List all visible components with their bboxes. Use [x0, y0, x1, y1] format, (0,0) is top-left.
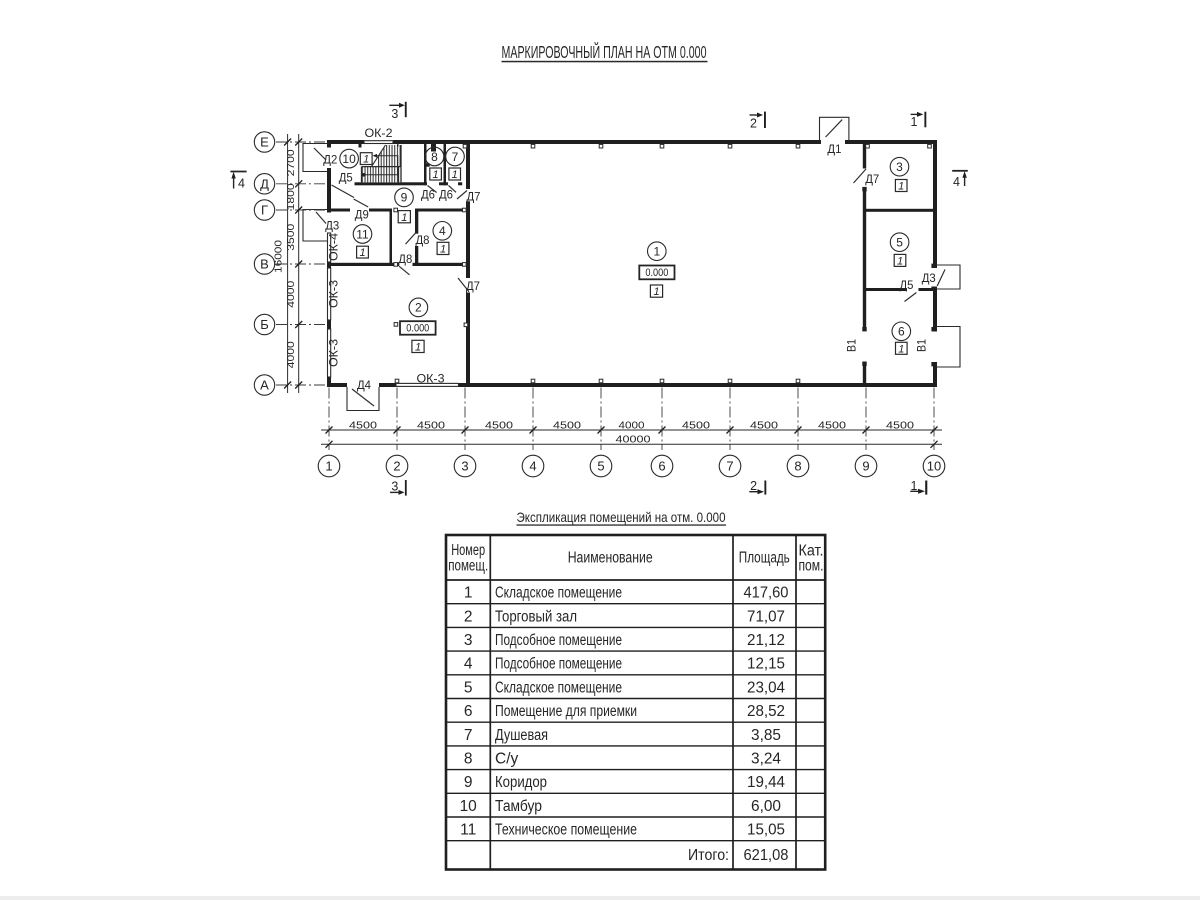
- svg-text:8: 8: [464, 751, 473, 768]
- svg-text:2700: 2700: [286, 149, 297, 177]
- svg-text:9: 9: [401, 191, 408, 205]
- svg-text:Складское помещение: Складское помещение: [495, 679, 622, 696]
- svg-text:10: 10: [342, 152, 356, 166]
- svg-text:5: 5: [597, 459, 604, 474]
- svg-text:А: А: [260, 378, 269, 393]
- svg-text:3: 3: [391, 480, 398, 494]
- svg-text:4: 4: [238, 177, 245, 191]
- svg-text:пом.: пом.: [799, 558, 824, 575]
- svg-text:С/у: С/у: [495, 751, 519, 768]
- svg-text:Складское помещение: Складское помещение: [495, 585, 622, 602]
- svg-text:10: 10: [460, 798, 478, 815]
- svg-text:15,05: 15,05: [747, 822, 785, 839]
- svg-text:5: 5: [896, 236, 903, 250]
- svg-text:8: 8: [431, 150, 438, 164]
- svg-text:4000: 4000: [286, 280, 297, 308]
- svg-text:Д4: Д4: [357, 378, 371, 392]
- svg-text:1: 1: [464, 585, 473, 602]
- svg-text:Коридор: Коридор: [495, 774, 547, 791]
- svg-text:2: 2: [393, 459, 400, 474]
- svg-text:1: 1: [363, 154, 369, 166]
- svg-text:1: 1: [898, 343, 904, 355]
- svg-text:Б: Б: [260, 317, 269, 332]
- svg-text:0.000: 0.000: [645, 267, 668, 279]
- svg-text:Д8: Д8: [416, 233, 430, 247]
- svg-text:4: 4: [464, 656, 473, 673]
- svg-text:Д7: Д7: [467, 190, 481, 204]
- svg-text:0.000: 0.000: [406, 323, 429, 335]
- svg-text:3: 3: [461, 459, 468, 474]
- svg-text:71,07: 71,07: [747, 608, 785, 625]
- svg-text:9: 9: [464, 774, 473, 791]
- svg-text:1800: 1800: [286, 183, 297, 211]
- svg-text:В1: В1: [844, 339, 858, 352]
- svg-text:417,60: 417,60: [744, 585, 789, 602]
- svg-text:12,15: 12,15: [747, 656, 785, 673]
- svg-text:Д8: Д8: [398, 252, 412, 266]
- svg-text:7: 7: [464, 727, 473, 744]
- svg-text:4: 4: [439, 224, 446, 238]
- svg-text:4500: 4500: [553, 420, 582, 431]
- svg-text:1: 1: [401, 212, 407, 224]
- svg-text:ОК-2: ОК-2: [365, 126, 393, 140]
- svg-text:11: 11: [356, 227, 369, 241]
- svg-text:2: 2: [750, 117, 757, 131]
- svg-text:Д2: Д2: [323, 152, 337, 166]
- svg-text:3,24: 3,24: [751, 751, 781, 768]
- svg-text:7: 7: [452, 150, 459, 164]
- svg-text:4500: 4500: [485, 420, 514, 431]
- svg-text:ОК-3: ОК-3: [417, 371, 445, 385]
- svg-text:4500: 4500: [750, 420, 779, 431]
- svg-text:3500: 3500: [286, 223, 297, 251]
- svg-text:1: 1: [440, 244, 446, 256]
- svg-text:3,85: 3,85: [751, 727, 781, 744]
- svg-text:Д3: Д3: [922, 271, 936, 285]
- svg-text:Д3: Д3: [325, 219, 339, 233]
- svg-text:Подсобное помещение: Подсобное помещение: [495, 656, 622, 673]
- svg-text:4500: 4500: [417, 420, 446, 431]
- svg-text:7: 7: [726, 459, 733, 474]
- svg-text:Д7: Д7: [466, 279, 480, 293]
- svg-text:Техническое помещение: Техническое помещение: [495, 822, 637, 839]
- svg-text:Подсобное помещение: Подсобное помещение: [495, 632, 622, 649]
- svg-text:Наименование: Наименование: [568, 550, 653, 567]
- svg-text:4: 4: [529, 459, 536, 474]
- svg-text:Д5: Д5: [900, 278, 914, 292]
- svg-text:4000: 4000: [286, 341, 297, 369]
- svg-text:1: 1: [433, 169, 439, 181]
- svg-text:1: 1: [911, 479, 918, 493]
- svg-text:В: В: [260, 257, 269, 272]
- svg-text:621,08: 621,08: [744, 847, 789, 864]
- svg-text:10: 10: [927, 459, 941, 474]
- svg-text:Площадь: Площадь: [739, 550, 790, 567]
- svg-text:6: 6: [898, 325, 905, 339]
- svg-text:ОК-4: ОК-4: [326, 233, 340, 261]
- svg-text:4500: 4500: [886, 420, 915, 431]
- svg-text:8: 8: [794, 459, 801, 474]
- svg-text:2: 2: [750, 479, 757, 493]
- svg-text:1: 1: [415, 342, 421, 354]
- svg-text:5: 5: [464, 679, 473, 696]
- svg-text:6: 6: [464, 703, 473, 720]
- svg-text:Д6: Д6: [439, 187, 453, 201]
- svg-text:Душевая: Душевая: [495, 727, 548, 744]
- svg-text:1: 1: [897, 256, 903, 268]
- svg-text:Е: Е: [260, 135, 269, 150]
- svg-text:ОК-3: ОК-3: [326, 339, 340, 367]
- svg-text:помещ.: помещ.: [448, 558, 488, 575]
- svg-text:1: 1: [325, 459, 332, 474]
- svg-text:16000: 16000: [274, 239, 285, 273]
- svg-text:1: 1: [911, 115, 918, 129]
- svg-text:4500: 4500: [682, 420, 711, 431]
- svg-text:1: 1: [898, 181, 904, 193]
- svg-text:1: 1: [653, 245, 660, 259]
- svg-text:23,04: 23,04: [747, 679, 785, 696]
- svg-text:3: 3: [464, 632, 473, 649]
- svg-text:6: 6: [658, 459, 665, 474]
- svg-text:19,44: 19,44: [747, 774, 785, 791]
- svg-text:1: 1: [653, 286, 659, 298]
- svg-text:Итого:: Итого:: [688, 847, 729, 864]
- svg-text:3: 3: [896, 160, 903, 174]
- svg-text:2: 2: [464, 608, 473, 625]
- svg-text:Д1: Д1: [827, 142, 841, 156]
- svg-text:21,12: 21,12: [747, 632, 785, 649]
- svg-text:Д5: Д5: [339, 171, 353, 185]
- svg-text:4500: 4500: [818, 420, 847, 431]
- svg-text:Д: Д: [260, 177, 269, 192]
- svg-text:Д7: Д7: [865, 172, 879, 186]
- svg-text:Номер: Номер: [451, 542, 485, 559]
- svg-text:6,00: 6,00: [751, 798, 781, 815]
- svg-text:2: 2: [415, 301, 422, 315]
- svg-text:3: 3: [391, 107, 398, 121]
- svg-text:4: 4: [953, 175, 960, 189]
- svg-text:40000: 40000: [616, 435, 652, 446]
- svg-text:Г: Г: [261, 203, 268, 218]
- svg-text:Тамбур: Тамбур: [495, 798, 542, 815]
- svg-text:МАРКИРОВОЧНЫЙ ПЛАН НА ОТМ 0.00: МАРКИРОВОЧНЫЙ ПЛАН НА ОТМ 0.000: [502, 41, 707, 62]
- svg-text:Экспликация помещений на отм.: Экспликация помещений на отм. 0.000: [517, 510, 726, 525]
- svg-text:Д6: Д6: [421, 187, 435, 201]
- svg-text:1: 1: [452, 169, 458, 181]
- svg-text:Торговый зал: Торговый зал: [495, 608, 577, 625]
- svg-text:1: 1: [359, 247, 365, 259]
- svg-text:4500: 4500: [349, 420, 378, 431]
- svg-text:ОК-3: ОК-3: [326, 280, 340, 308]
- svg-text:11: 11: [460, 822, 476, 839]
- svg-text:В1: В1: [914, 339, 928, 352]
- svg-text:9: 9: [862, 459, 869, 474]
- svg-text:Д9: Д9: [355, 208, 369, 222]
- svg-text:28,52: 28,52: [747, 703, 785, 720]
- svg-text:Помещение для приемки: Помещение для приемки: [495, 703, 637, 720]
- svg-text:4000: 4000: [619, 420, 646, 431]
